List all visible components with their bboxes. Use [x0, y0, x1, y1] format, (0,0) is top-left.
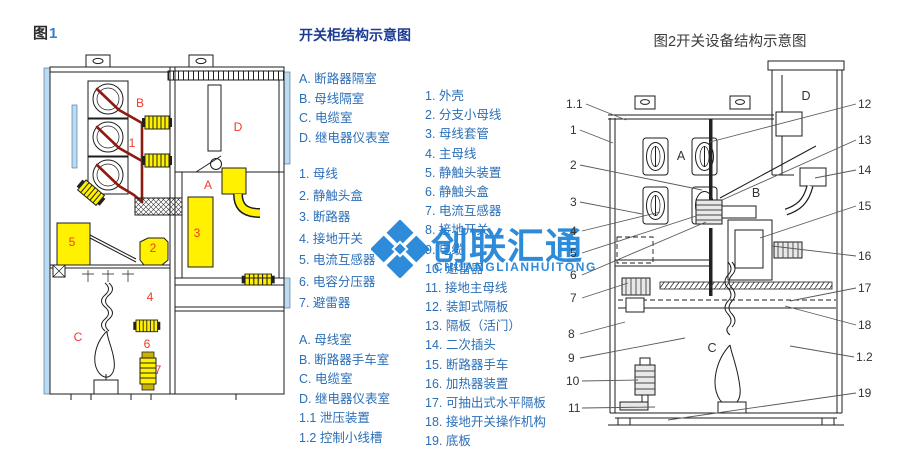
legend-item: 7. 电流互感器 — [425, 202, 546, 221]
fig1-contact-block — [135, 198, 182, 215]
fig1-part-label-1: 1 — [129, 136, 136, 150]
watermark-logo-icon — [371, 220, 429, 278]
fig1-part-label-2: 2 — [150, 241, 157, 255]
figure1-label-prefix: 图 — [33, 25, 49, 42]
legend-item: 5. 静触头装置 — [425, 164, 546, 183]
fig1-zone-label-A: A — [204, 178, 212, 192]
fig2-callout-15: 15 — [858, 199, 872, 213]
legend-right-list: 1. 外壳2. 分支小母线3. 母线套管4. 主母线5. 静触头装置6. 静触头… — [425, 87, 546, 452]
legend-item: 15. 断路器手车 — [425, 356, 546, 375]
legend-item: 3. 母线套管 — [425, 125, 546, 144]
fig1-zone-label-D: D — [234, 120, 243, 134]
fig2-arrester — [635, 358, 655, 405]
legend-item: 1. 母线 — [299, 164, 375, 186]
legend-item: 4. 接地开关 — [299, 229, 375, 251]
fig1-right-panel-lower — [284, 278, 290, 308]
legend-item: 12. 装卸式隔板 — [425, 298, 546, 317]
legend-item: A. 母线室 — [299, 331, 390, 351]
fig2-rail-strip — [660, 282, 832, 289]
fig1-ct-coil-2 — [142, 154, 172, 167]
fig2-callout-13: 13 — [858, 133, 872, 147]
legend-left-group1: A. 断路器隔室B. 母线隔室C. 电缆室D. 继电器仪表室 — [299, 70, 390, 148]
fig2-zone-label-D: D — [801, 89, 810, 103]
fig2-zone-label-A: A — [677, 149, 686, 163]
legend-left-group3: A. 母线室B. 断路器手车室C. 电缆室D. 继电器仪表室1.1 泄压装置1.… — [299, 331, 390, 448]
fig1-right-panel-upper — [284, 72, 290, 164]
legend-item: 9. 电缆 — [425, 241, 546, 260]
legend-item: A. 断路器隔室 — [299, 70, 390, 90]
fig1-arrester — [140, 352, 156, 390]
fig2-zone-label-C: C — [707, 341, 716, 355]
fig2-callout-1.1: 1.1 — [566, 97, 583, 111]
fig2-dashed-box — [617, 237, 653, 263]
legend-left-title: 开关柜结构示意图 — [299, 25, 411, 45]
fig2-callout-3: 3 — [570, 195, 577, 209]
legend-item: 6. 静触头盒 — [425, 183, 546, 202]
fig1-vent-strip — [168, 71, 284, 80]
fig2-callout-16: 16 — [858, 249, 872, 263]
legend-left-group2: 1. 母线2. 静触头盒3. 断路器4. 接地开关5. 电流互感器6. 电容分压… — [299, 164, 375, 315]
fig2-center-wall-upper — [709, 119, 713, 204]
legend-item: 17. 可抽出式水平隔板 — [425, 394, 546, 413]
legend-item: 13. 隔板（活门） — [425, 317, 546, 336]
legend-item: 6. 电容分压器 — [299, 272, 375, 294]
fig2-callout-2: 2 — [570, 158, 577, 172]
legend-item: C. 电缆室 — [299, 109, 390, 129]
legend-item: B. 断路器手车室 — [299, 351, 390, 371]
fig1-ct-coil-1 — [142, 116, 172, 129]
page: 图1 — [0, 0, 900, 474]
legend-item: 10. 避雷器 — [425, 260, 546, 279]
legend-item: 5. 电流互感器 — [299, 250, 375, 272]
fig2-callout-14: 14 — [858, 163, 872, 177]
legend-item: 4. 主母线 — [425, 145, 546, 164]
legend-item: 14. 二次插头 — [425, 336, 546, 355]
fig1-left-panel — [44, 68, 50, 394]
fig2-breaker-handcart — [728, 168, 826, 280]
legend-item: 2. 静触头盒 — [299, 186, 375, 208]
legend-item: 11. 接地主母线 — [425, 279, 546, 298]
fig2-ground-bus — [620, 402, 648, 410]
fig1-part-label-5: 5 — [69, 235, 76, 249]
legend-item: 1.2 控制小线槽 — [299, 429, 390, 449]
legend-item: 19. 底板 — [425, 432, 546, 451]
fig2-callout-9: 9 — [568, 351, 575, 365]
fig2-callout-11: 11 — [568, 401, 581, 415]
figure1-diagram: B D 1 A 5 2 3 4 C 6 7 — [36, 52, 294, 452]
fig1-zone-label-B: B — [136, 96, 144, 110]
legend-item: 7. 避雷器 — [299, 293, 375, 315]
fig1-lifting-lugs — [86, 55, 213, 68]
legend-item: 2. 分支小母线 — [425, 106, 546, 125]
legend-item: 18. 接地开关操作机构 — [425, 413, 546, 432]
legend-item: 8. 接地开关 — [425, 221, 546, 240]
fig2-callout-8: 8 — [568, 327, 575, 341]
fig1-zone-label-C: C — [74, 330, 83, 344]
fig1-part-label-6: 6 — [144, 337, 151, 351]
fig2-callout-17: 17 — [858, 281, 872, 295]
legend-item: 16. 加热器装置 — [425, 375, 546, 394]
fig2-callout-12: 12 — [858, 97, 872, 111]
figure1-label-number: 1 — [49, 25, 58, 42]
fig1-part-label-4: 4 — [147, 290, 154, 304]
fig2-ct-coil — [622, 278, 650, 312]
fig2-callout-6: 6 — [570, 268, 577, 282]
legend-item: C. 电缆室 — [299, 370, 390, 390]
legend-item: B. 母线隔室 — [299, 90, 390, 110]
fig2-callout-5: 5 — [570, 246, 577, 260]
legend-item: 1.1 泄压装置 — [299, 409, 390, 429]
figure1-label: 图1 — [33, 22, 58, 43]
fig2-callout-1: 1 — [570, 123, 577, 137]
fig2-callout-4: 4 — [570, 224, 577, 238]
legend-item: 3. 断路器 — [299, 207, 375, 229]
fig2-callout-7: 7 — [570, 291, 577, 305]
fig2-callout-10: 10 — [566, 374, 580, 388]
fig1-part-label-3: 3 — [194, 226, 201, 240]
fig2-callout-19: 19 — [858, 386, 872, 400]
legend-item: D. 继电器仪表室 — [299, 390, 390, 410]
legend-item: D. 继电器仪表室 — [299, 129, 390, 149]
figure2-title: 图2开关设备结构示意图 — [565, 30, 895, 51]
fig2-callout-1.2: 1.2 — [856, 350, 873, 364]
fig1-part-label-7: 7 — [155, 363, 162, 377]
fig2-leader-lines — [580, 104, 856, 420]
figure2-diagram: 1.1 1 2 3 4 5 6 7 8 9 10 11 12 13 14 15 … — [560, 50, 895, 470]
fig2-zone-label-B: B — [752, 186, 760, 200]
fig2-callout-18: 18 — [858, 318, 872, 332]
legend-item: 1. 外壳 — [425, 87, 546, 106]
